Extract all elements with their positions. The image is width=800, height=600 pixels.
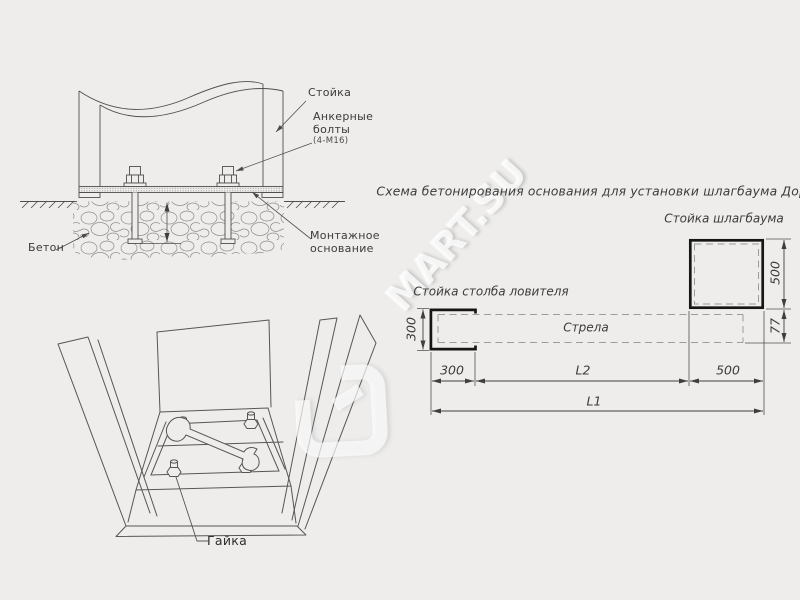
label-catcher-post: Стойка столба ловителя <box>413 286 568 299</box>
dim-barrier-width: 500 <box>716 364 740 377</box>
section-drawing <box>20 82 345 260</box>
label-barrier-post: Стойка шлагбаума <box>664 213 784 226</box>
label-anchor-bolts-spec: (4-М16) <box>313 137 348 146</box>
label-nut: Гайка <box>207 535 247 548</box>
label-concrete: Бетон <box>28 242 64 255</box>
barrier-post-square <box>690 240 762 307</box>
drawing-sheet: MART.SU Стойка Анкерные болты (4-М16) Мо… <box>0 0 800 600</box>
dim-l2: L2 <box>576 364 591 377</box>
dim-barrier-height: 500 <box>769 261 782 285</box>
label-post: Стойка <box>308 87 351 100</box>
label-boom: Стрела <box>563 322 608 335</box>
dim-boom-offset: 77 <box>769 318 782 334</box>
plan-title: Схема бетонирования основания для устано… <box>376 186 800 199</box>
label-mounting-base: Монтажное основание <box>310 230 380 255</box>
dim-catcher-height: 300 <box>405 317 418 341</box>
label-anchor-bolts: Анкерные болты <box>313 111 373 136</box>
dim-l1: L1 <box>587 395 602 408</box>
dim-catcher-width: 300 <box>440 364 464 377</box>
